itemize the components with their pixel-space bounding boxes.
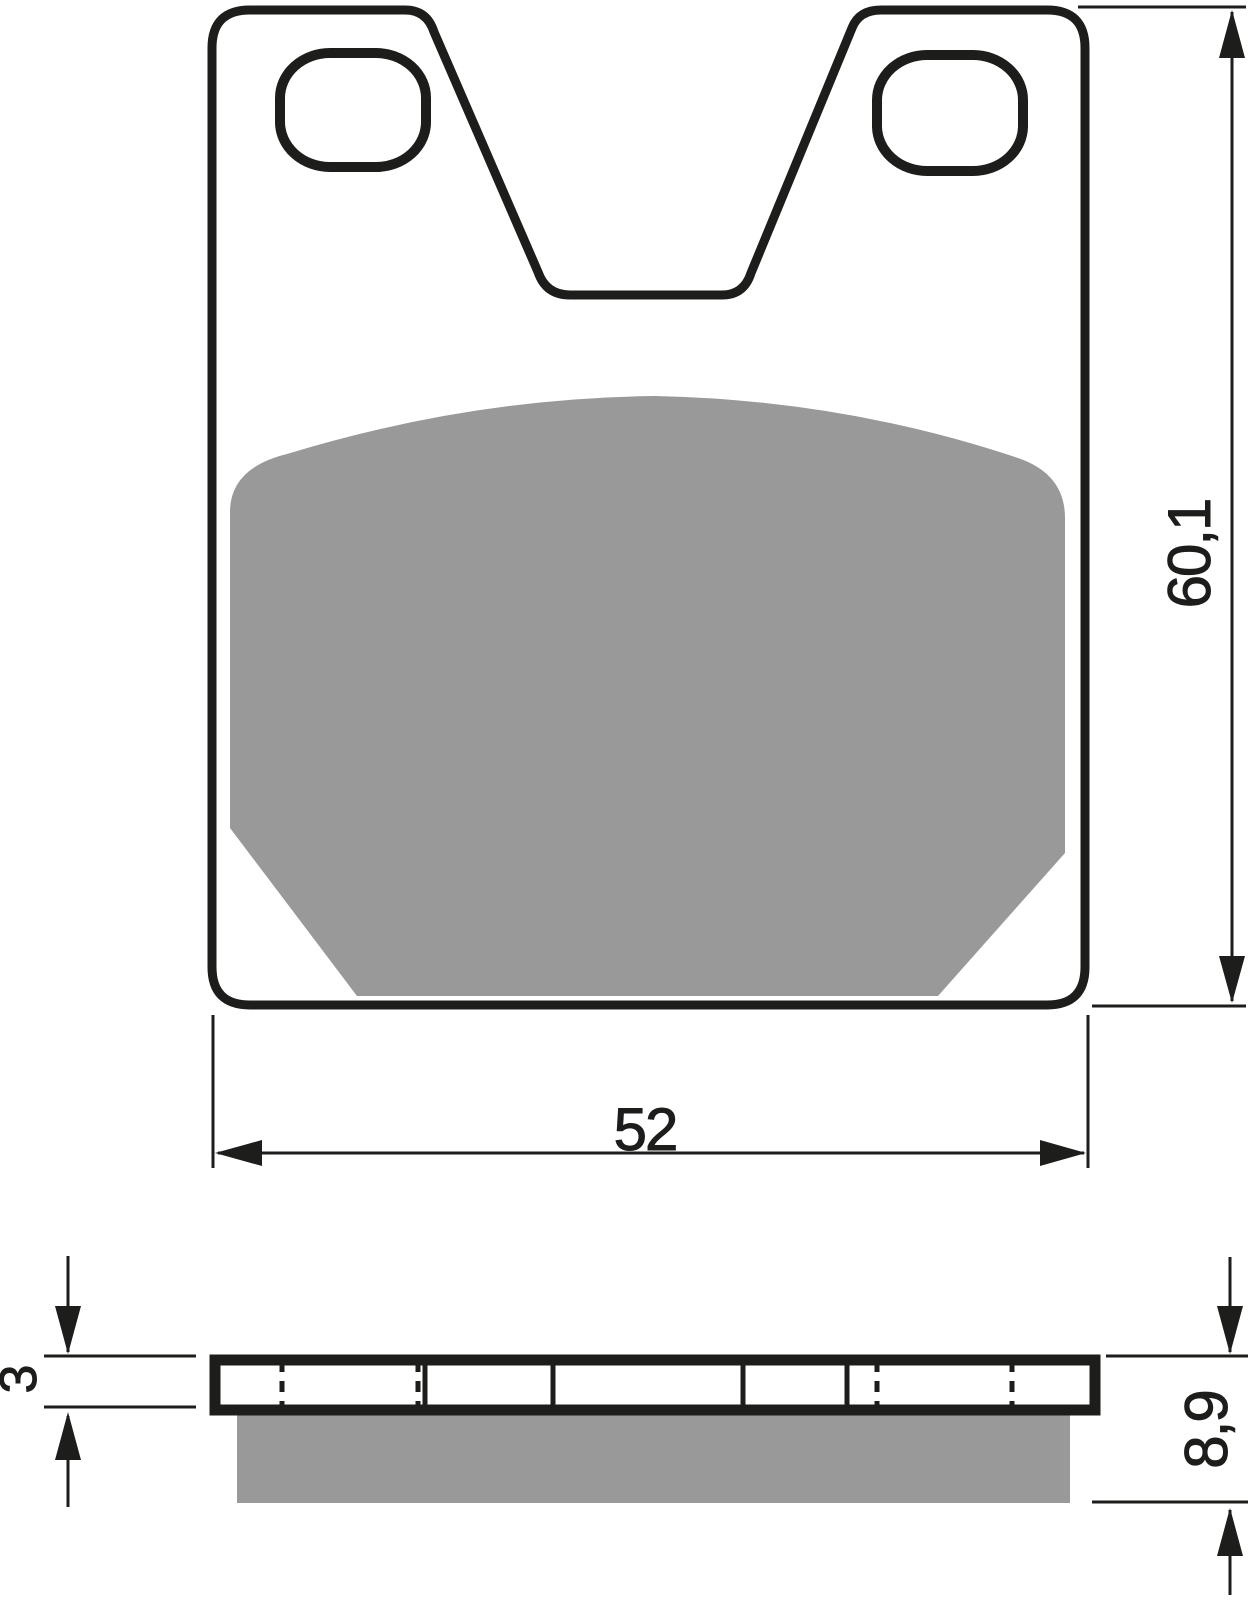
width-dimension-label: 52 — [614, 1096, 677, 1163]
height-dimension-label: 60,1 — [1156, 500, 1223, 609]
friction-material-side — [237, 1414, 1070, 1503]
dimension-total-thickness: 8,9 — [1092, 1257, 1248, 1595]
technical-drawing-canvas: 60,1 52 — [0, 0, 1250, 1600]
plate-thickness-label: 3 — [0, 1366, 48, 1393]
dimension-height: 60,1 — [1078, 7, 1246, 1006]
total-thickness-label: 8,9 — [1173, 1391, 1240, 1468]
drawing-geometry: 60,1 52 — [0, 7, 1248, 1595]
mounting-hole-right — [877, 55, 1023, 171]
arrow-down-icon — [1217, 1306, 1243, 1354]
dimension-width: 52 — [213, 1015, 1088, 1168]
arrow-left-icon — [215, 1140, 262, 1166]
arrow-up-icon — [1219, 10, 1245, 58]
brake-pad-dimension-drawing: 60,1 52 — [0, 0, 1250, 1600]
arrowheads-plate-thickness — [55, 1306, 81, 1460]
arrow-down-icon — [55, 1306, 81, 1354]
arrow-up-icon — [1217, 1508, 1243, 1556]
side-view — [215, 1360, 1095, 1503]
friction-material-front — [230, 396, 1065, 996]
front-view — [212, 10, 1085, 1005]
dimension-plate-thickness: 3 — [0, 1256, 196, 1507]
arrow-down-icon — [1219, 956, 1245, 1003]
backplate-outline — [215, 1360, 1095, 1410]
mounting-hole-left — [280, 53, 426, 167]
arrow-right-icon — [1040, 1140, 1086, 1166]
arrow-up-icon — [55, 1412, 81, 1460]
